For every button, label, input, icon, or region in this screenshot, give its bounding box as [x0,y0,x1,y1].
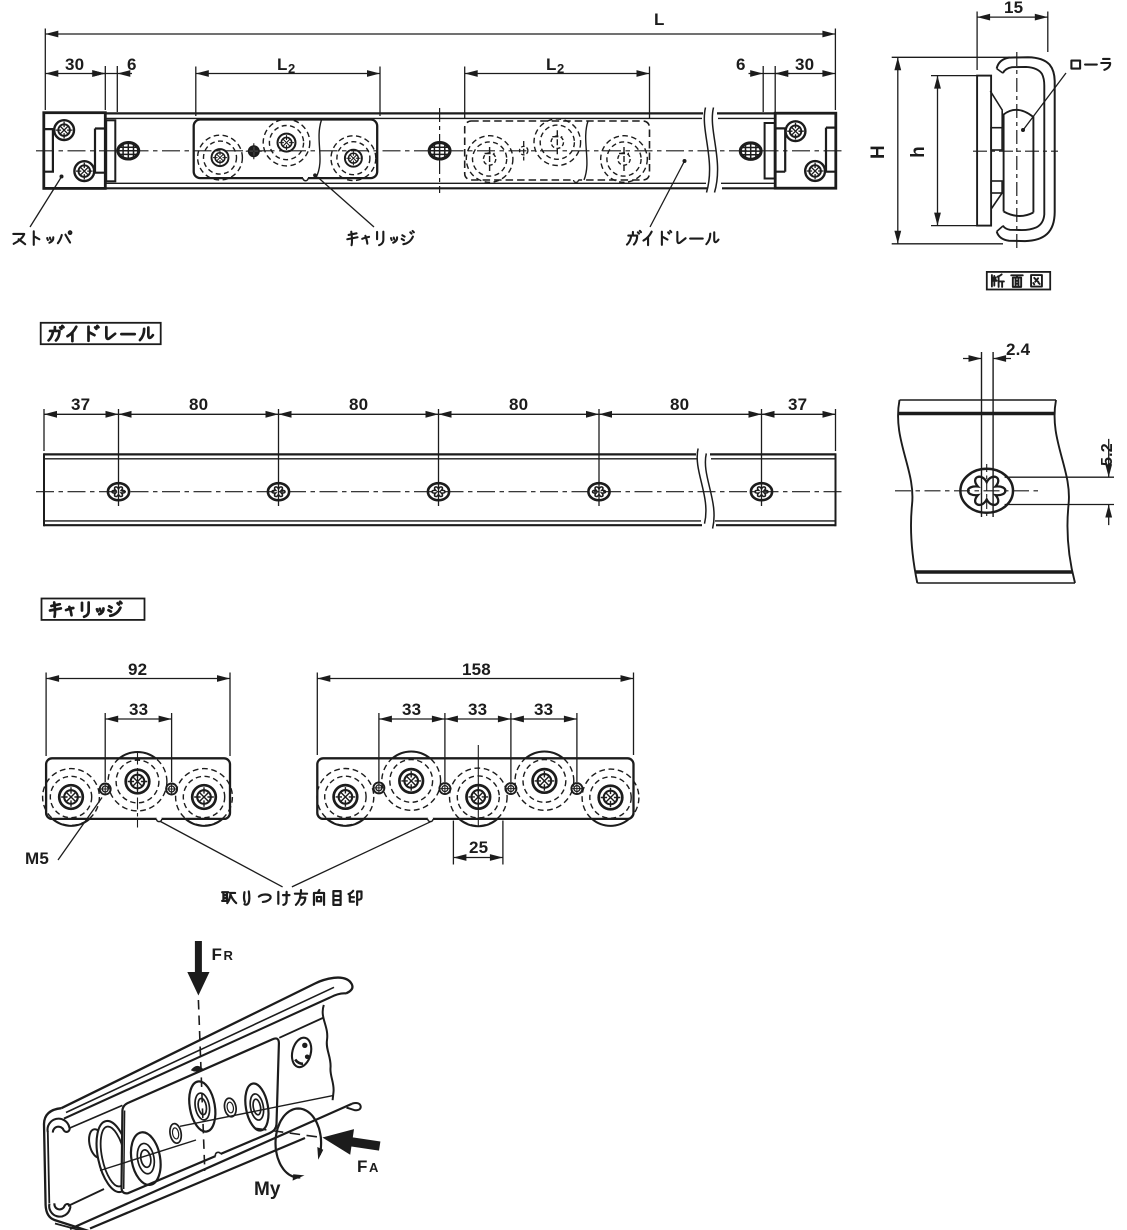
svg-text:80: 80 [670,395,689,414]
svg-text:37: 37 [788,395,807,414]
svg-text:h: h [908,146,929,158]
svg-text:A: A [369,1160,379,1175]
svg-text:2: 2 [557,61,564,76]
svg-text:80: 80 [189,395,208,414]
svg-text:R: R [224,948,234,963]
svg-text:M5: M5 [25,849,49,868]
svg-text:80: 80 [509,395,528,414]
svg-text:158: 158 [462,660,491,679]
svg-text:2: 2 [288,61,295,76]
svg-text:L: L [654,10,665,29]
svg-text:5.2: 5.2 [1099,443,1116,466]
svg-text:33: 33 [534,700,553,719]
svg-text:30: 30 [795,55,814,74]
svg-text:6: 6 [127,55,137,74]
svg-text:25: 25 [469,838,488,857]
svg-text:6: 6 [736,55,746,74]
svg-text:My: My [254,1179,281,1200]
svg-text:80: 80 [349,395,368,414]
svg-text:L: L [277,55,288,74]
svg-text:37: 37 [71,395,90,414]
svg-text:30: 30 [65,55,84,74]
svg-text:H: H [868,145,889,159]
svg-text:2.4: 2.4 [1006,340,1031,359]
svg-text:F: F [357,1157,367,1176]
svg-text:92: 92 [128,660,147,679]
svg-text:L: L [546,55,557,74]
svg-text:33: 33 [129,700,148,719]
svg-text:F: F [212,945,222,964]
svg-text:33: 33 [468,700,487,719]
svg-text:33: 33 [402,700,421,719]
svg-text:15: 15 [1004,0,1023,17]
